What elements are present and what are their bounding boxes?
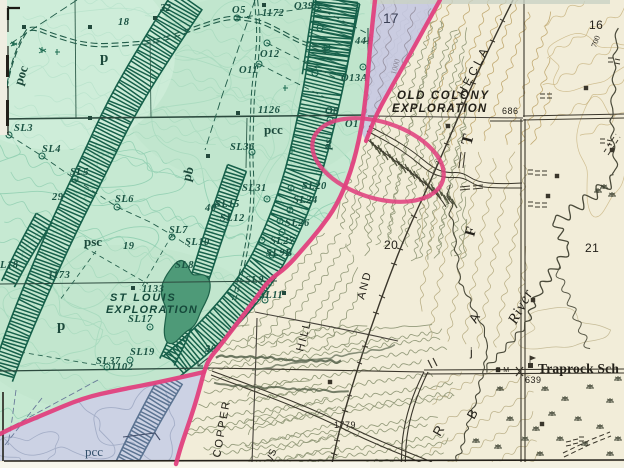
- svg-text:SL6: SL6: [115, 194, 134, 205]
- svg-text:psc: psc: [84, 234, 102, 249]
- svg-text:SL3: SL3: [14, 123, 33, 134]
- svg-text:pcc: pcc: [85, 444, 103, 459]
- svg-text:p: p: [57, 318, 65, 334]
- svg-text:1126: 1126: [258, 105, 281, 116]
- svg-text:32: 32: [159, 3, 172, 14]
- svg-text:O11: O11: [239, 65, 258, 76]
- svg-text:1779: 1779: [334, 420, 356, 430]
- svg-text:O12: O12: [260, 49, 280, 60]
- svg-text:SL12: SL12: [220, 213, 245, 224]
- svg-text:639: 639: [525, 375, 542, 385]
- svg-text:686: 686: [502, 106, 519, 116]
- svg-text:SL24: SL24: [293, 195, 318, 206]
- svg-text:SL31: SL31: [242, 183, 267, 194]
- svg-text:ST LOUIS: ST LOUIS: [110, 292, 177, 304]
- svg-text:pcc: pcc: [264, 122, 283, 137]
- svg-text:29: 29: [51, 192, 64, 203]
- svg-text:SL20: SL20: [302, 181, 327, 192]
- svg-text:O5: O5: [232, 5, 246, 16]
- svg-text:1173: 1173: [48, 270, 70, 281]
- svg-text:SL15: SL15: [215, 199, 240, 210]
- svg-text:16: 16: [589, 18, 603, 32]
- svg-text:O39: O39: [294, 1, 314, 12]
- svg-text:19: 19: [123, 241, 135, 252]
- svg-text:EXPLORATION: EXPLORATION: [392, 103, 487, 115]
- svg-text:SL4: SL4: [42, 144, 61, 155]
- svg-text:18: 18: [118, 17, 130, 28]
- svg-text:j: j: [469, 345, 473, 359]
- svg-text:Traprock Sch: Traprock Sch: [538, 361, 619, 376]
- svg-text:SL27: SL27: [270, 236, 295, 247]
- svg-text:1172: 1172: [262, 8, 285, 19]
- svg-text:20: 20: [384, 238, 398, 252]
- svg-text:OLD COLONY: OLD COLONY: [397, 90, 490, 102]
- svg-text:SL9: SL9: [245, 275, 264, 286]
- svg-text:1102: 1102: [111, 362, 134, 373]
- svg-text:O8: O8: [325, 106, 339, 117]
- svg-text:17: 17: [383, 10, 399, 26]
- svg-text:SL10: SL10: [185, 237, 210, 248]
- svg-text:O13A: O13A: [341, 73, 368, 84]
- svg-text:SL7: SL7: [169, 225, 188, 236]
- svg-text:B M: B M: [496, 367, 509, 374]
- svg-text:40: 40: [204, 203, 217, 214]
- svg-text:SL9B: SL9B: [266, 248, 293, 259]
- svg-text:SL8: SL8: [175, 260, 194, 271]
- svg-text:SL36: SL36: [230, 142, 255, 153]
- svg-text:p: p: [100, 50, 108, 66]
- svg-text:SL19: SL19: [130, 347, 155, 358]
- svg-text:L18: L18: [0, 260, 19, 271]
- svg-text:SL26: SL26: [285, 218, 310, 229]
- svg-text:SL5: SL5: [70, 167, 89, 178]
- svg-text:21: 21: [585, 241, 599, 255]
- svg-text:EXPLORATION: EXPLORATION: [106, 304, 198, 316]
